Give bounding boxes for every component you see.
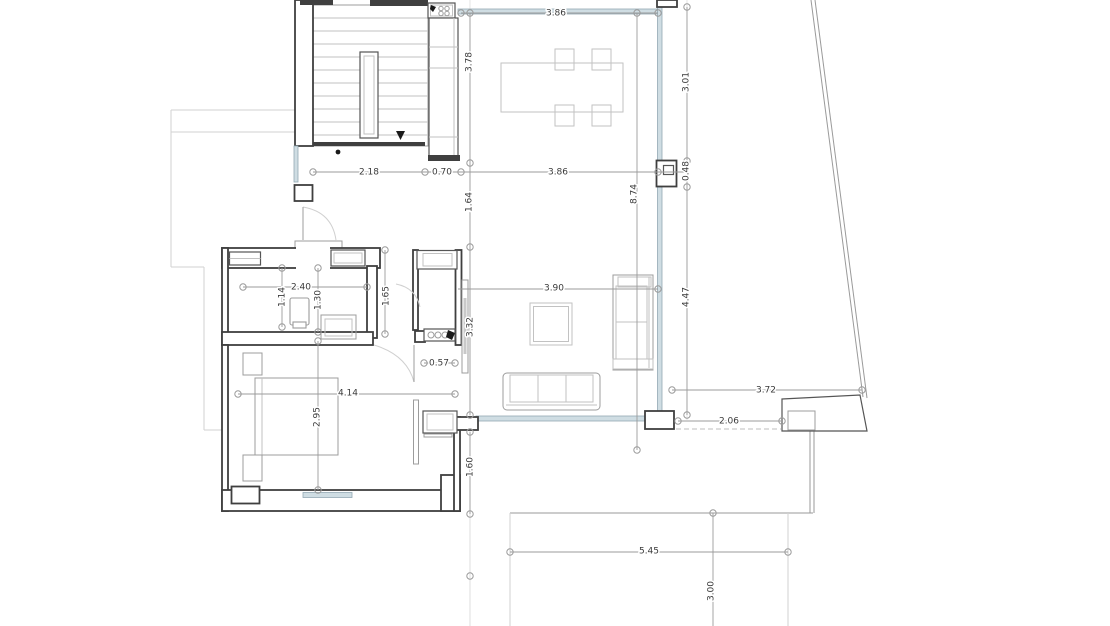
bedroom-door-swing <box>374 345 414 382</box>
terrace-outline <box>470 513 813 626</box>
nightstand <box>243 353 262 375</box>
glazing <box>294 7 662 421</box>
stair-west-wall <box>295 0 313 146</box>
south-sliding-door <box>476 416 646 421</box>
bed <box>255 378 338 455</box>
bedroom-west-wall <box>222 345 228 511</box>
bedroom <box>222 345 478 511</box>
dim-kitchen-counter-length: 3.78 <box>465 52 475 72</box>
dining-chair <box>592 49 611 70</box>
dining-chair <box>555 49 574 70</box>
column-southeast <box>645 411 674 429</box>
sofa-three-seat <box>503 373 600 410</box>
floor-vent <box>424 434 452 437</box>
entry-door-swing <box>303 207 336 240</box>
dim-tv-wall-length: 3.32 <box>466 317 476 337</box>
dimension-labels: 3.86 2.18 0.70 3.86 3.78 1.64 8.74 3.01 … <box>278 9 777 602</box>
east-window-upper <box>658 7 663 161</box>
dim-dining-width: 3.86 <box>548 168 568 178</box>
dim-glass-segment-upper: 3.01 <box>682 72 692 92</box>
staircase <box>295 0 428 154</box>
living-room <box>462 275 653 410</box>
dim-entry-gap: 1.64 <box>465 192 475 212</box>
nightstand <box>243 455 262 481</box>
dim-patio-offset-a: 3.72 <box>756 386 776 396</box>
dim-rear-offset: 1.60 <box>466 457 476 477</box>
closet-door-leaf <box>414 400 419 464</box>
wall-nib-living <box>455 417 478 430</box>
east-window-lower <box>658 187 663 412</box>
dim-bath-depth-b: 1.30 <box>314 290 324 310</box>
toilet <box>290 298 309 325</box>
dining-chair <box>555 105 574 126</box>
coffee-table <box>530 303 572 345</box>
wall-niche <box>331 250 365 266</box>
columns <box>295 0 678 429</box>
dim-great-room-length: 8.74 <box>630 184 640 204</box>
bedroom-window <box>303 493 352 498</box>
dim-terrace-width: 5.45 <box>639 547 659 557</box>
dim-counter-depth: 0.70 <box>432 168 452 178</box>
dining-area <box>501 49 623 126</box>
dim-column-width: 0.48 <box>682 161 692 181</box>
dim-glass-segment-lower: 4.47 <box>682 287 692 307</box>
site-boundary-line <box>810 0 867 513</box>
kitchen <box>428 3 460 161</box>
west-wall-upper <box>222 248 228 345</box>
dim-nook-width: 0.57 <box>429 359 449 369</box>
entry-column <box>295 185 313 201</box>
dim-dining-top-width: 3.86 <box>546 9 566 19</box>
entry-side-window <box>294 146 298 182</box>
column-northeast <box>657 0 677 7</box>
dim-patio-offset-b: 2.06 <box>719 417 739 427</box>
bath-block <box>222 246 462 345</box>
stair-start-dot <box>336 150 341 155</box>
planter <box>782 395 867 431</box>
floor-plan-drawing: 3.86 2.18 0.70 3.86 3.78 1.64 8.74 3.01 … <box>0 0 1110 626</box>
dim-bath-depth-a: 1.14 <box>278 287 288 307</box>
dim-hall-width: 1.65 <box>382 286 392 306</box>
dim-bath-width: 2.40 <box>291 283 311 293</box>
toilet-tank <box>293 322 306 328</box>
dim-terrace-depth: 3.00 <box>707 581 717 601</box>
entry-porch <box>295 207 342 249</box>
dining-chair <box>592 105 611 126</box>
dim-living-width: 3.90 <box>544 284 564 294</box>
bath-east-wall <box>367 266 377 338</box>
dim-stair-width: 2.18 <box>359 168 379 178</box>
dim-bedroom-width: 4.14 <box>338 389 358 399</box>
dim-bedroom-depth: 2.95 <box>313 407 323 427</box>
floor-plan-canvas: 3.86 2.18 0.70 3.86 3.78 1.64 8.74 3.01 … <box>0 0 1110 626</box>
exterior-pillar <box>232 487 260 504</box>
patio-element <box>676 395 867 431</box>
